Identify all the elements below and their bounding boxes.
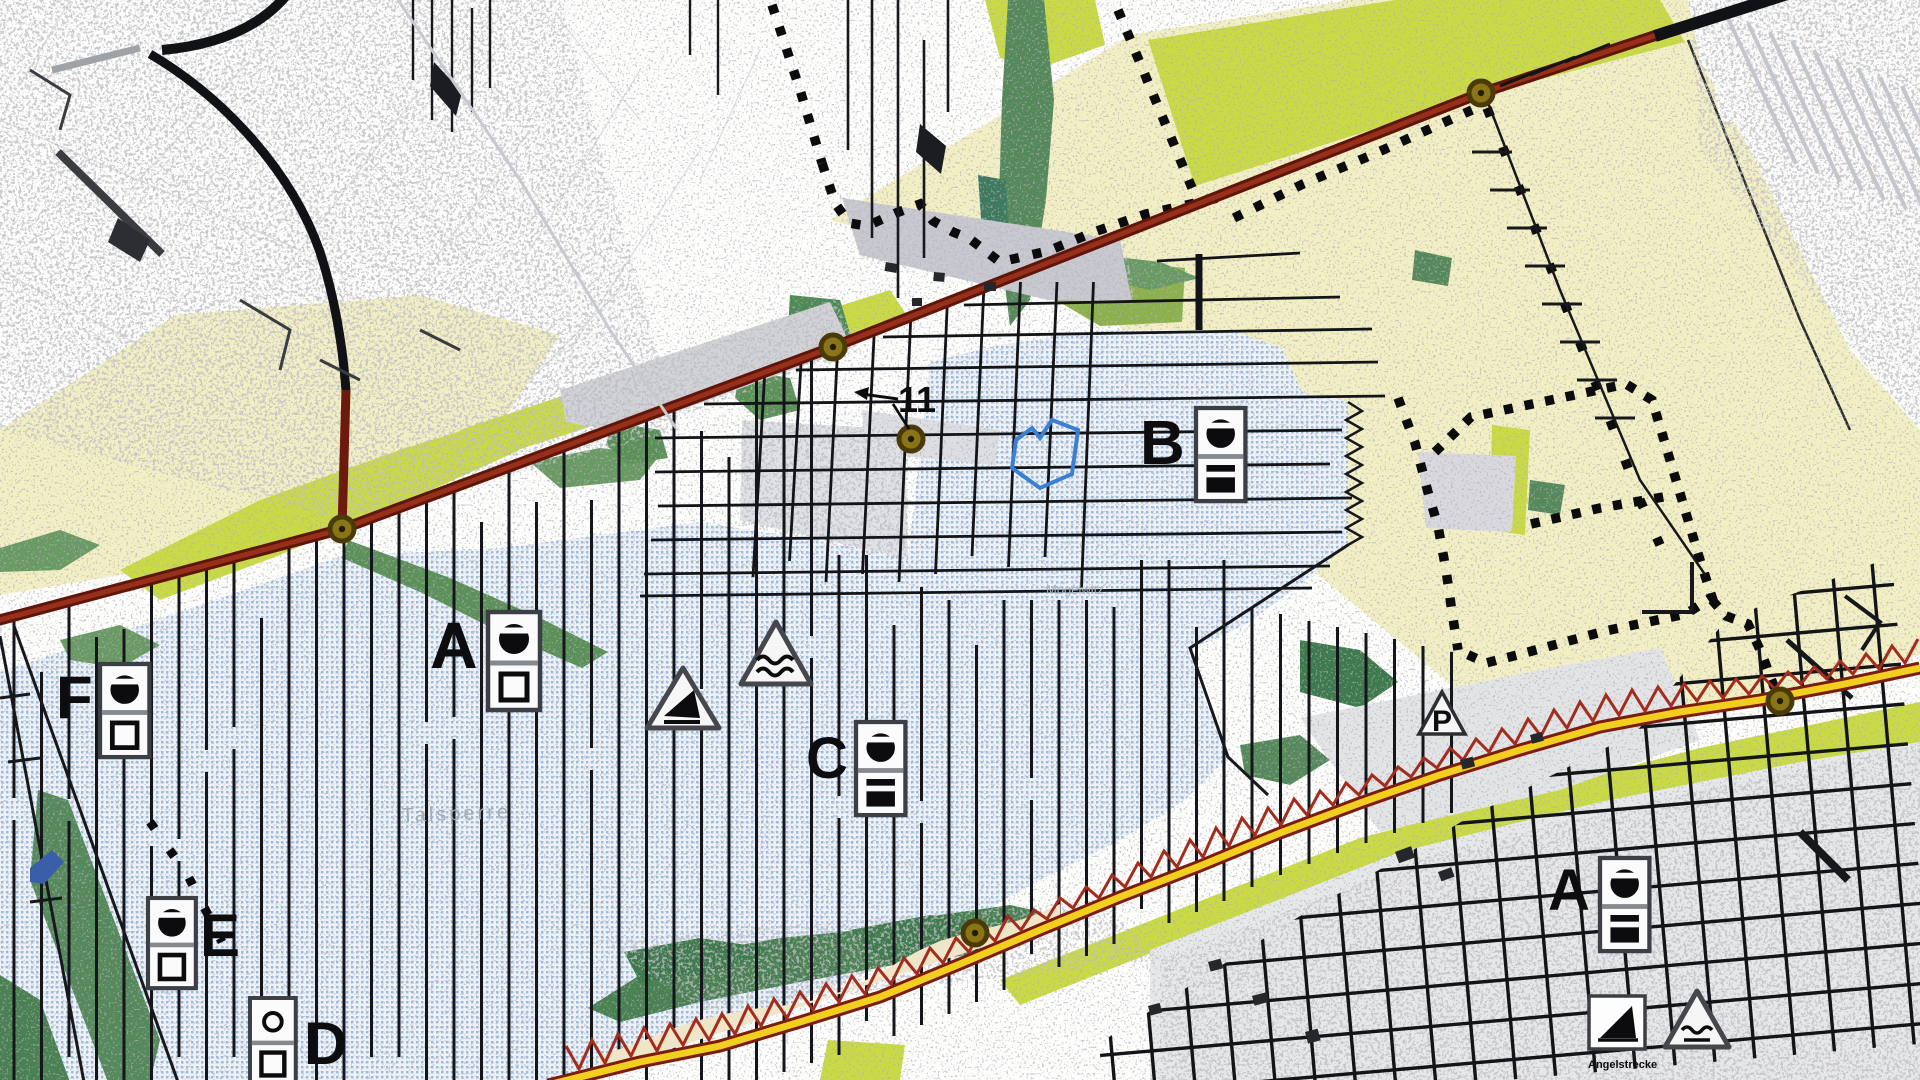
svg-text:Mogelwitz: Mogelwitz	[1046, 582, 1104, 597]
svg-text:P: P	[1432, 705, 1452, 738]
svg-text:D: D	[304, 1010, 347, 1077]
svg-text:Angelstrecke: Angelstrecke	[1588, 1059, 1657, 1071]
svg-text:A: A	[1548, 858, 1590, 923]
svg-text:C: C	[806, 726, 848, 791]
svg-text:E: E	[200, 902, 240, 969]
svg-text:11: 11	[898, 379, 936, 420]
svg-text:Talsperre: Talsperre	[401, 801, 511, 827]
svg-text:A: A	[430, 608, 478, 682]
svg-text:F: F	[56, 664, 93, 731]
svg-text:B: B	[1140, 409, 1185, 478]
